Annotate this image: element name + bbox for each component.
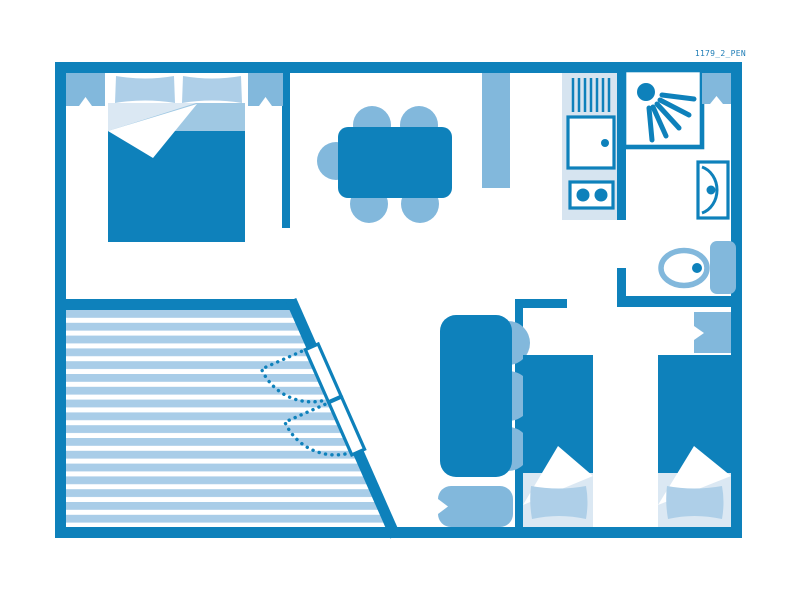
bathroom — [624, 70, 736, 294]
single-bed-icon — [658, 355, 731, 527]
pillow — [666, 486, 723, 519]
washbasin-icon — [698, 162, 728, 218]
window-icon — [248, 73, 283, 106]
window-icon — [66, 73, 105, 106]
sofa-icon — [440, 315, 512, 477]
double-bed-icon — [108, 76, 245, 242]
kitchen-unit-icon — [568, 117, 614, 168]
window-icon — [694, 312, 731, 353]
partition-screen — [482, 73, 510, 188]
toilet-icon — [661, 241, 736, 294]
bedroom-double — [66, 73, 283, 242]
floorplan-page: 1179_2_PEN — [0, 0, 800, 600]
wall-bathroom-bottom — [617, 296, 731, 307]
shower-icon — [624, 70, 702, 147]
dining-table-icon — [338, 127, 452, 198]
hob-icon — [570, 182, 613, 208]
window-icon — [702, 73, 731, 104]
dining-area — [317, 73, 510, 223]
single-bed-icon — [523, 355, 593, 527]
plan-code-label: 1179_2_PEN — [695, 49, 746, 58]
wall-right — [731, 62, 742, 538]
wall-bedroom-terrace — [66, 299, 295, 310]
bolster-cushion-icon — [438, 486, 513, 527]
sink-drainer-icon — [573, 78, 609, 112]
wall-left — [55, 62, 66, 538]
bedroom-twin — [523, 312, 731, 527]
wall-bedroom-dining — [282, 73, 290, 228]
pillow — [530, 486, 587, 519]
floorplan-canvas — [0, 0, 800, 600]
